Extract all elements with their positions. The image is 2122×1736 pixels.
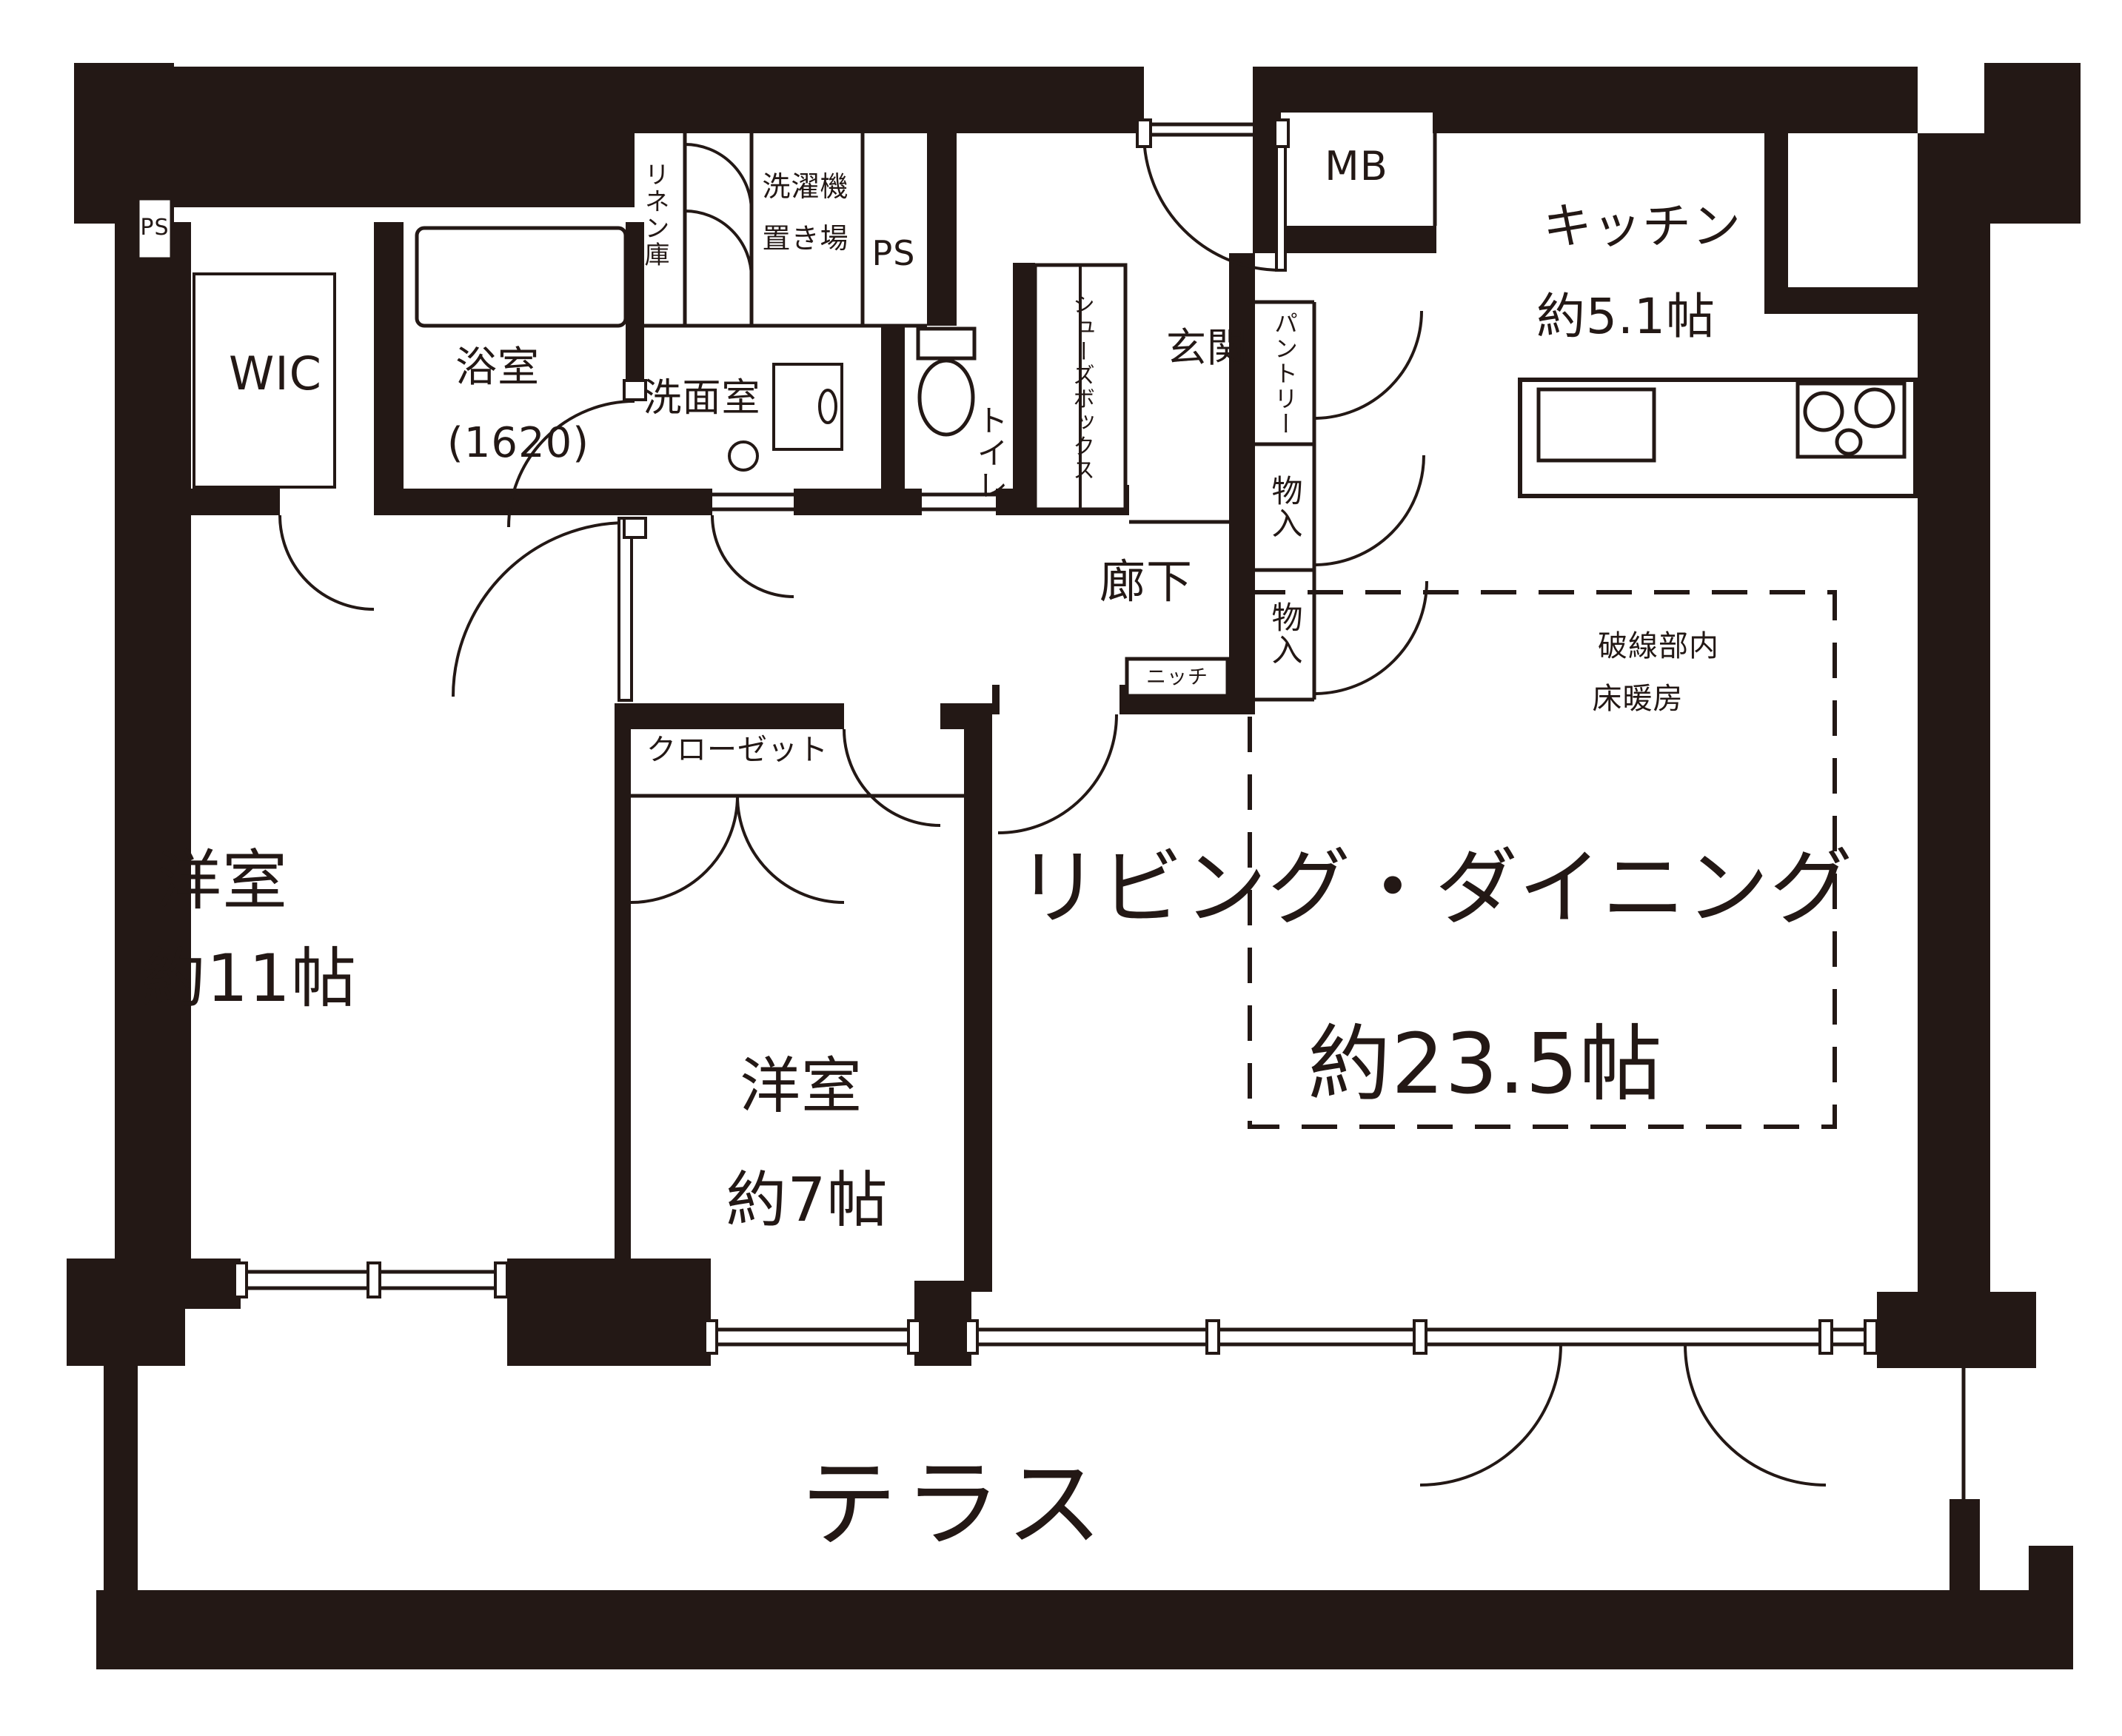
wall-pillar-bottom-left-b (67, 1259, 185, 1366)
terrace-door-arc-2 (1685, 1344, 1826, 1485)
jamb (368, 1263, 380, 1297)
label-laundry-1: 洗濯機 (762, 172, 849, 201)
wall-right (1918, 133, 1990, 1292)
label-storage-upper: 物入 (1269, 475, 1300, 540)
kitchen-sink (1539, 389, 1654, 460)
wall-ps-east (927, 132, 957, 326)
jamb (1820, 1321, 1832, 1353)
wall-terrace-partition-stub (1949, 1499, 1980, 1590)
entrance-door-leaf (1276, 133, 1285, 270)
wall-washroom-south (794, 489, 922, 515)
linen-bifold-arc-1 (685, 144, 752, 211)
washroom-door-arc (712, 515, 794, 597)
wall-toilet-shoebox (1013, 263, 1035, 485)
wall-closet-north-west (631, 703, 844, 729)
label-genkan: 玄関 (1166, 328, 1248, 368)
jamb (1207, 1321, 1219, 1353)
wic-door-arc (280, 515, 374, 609)
jamb (1137, 120, 1151, 147)
bed11-door-arc (453, 523, 626, 697)
label-living-name: リビング・ダイニング (1017, 847, 1853, 930)
wall-corridor-south-jamb (992, 685, 1000, 714)
wall-washroom-toilet (881, 326, 905, 490)
label-bed11-area: 約11帖 (141, 946, 357, 1011)
wall-pillar-top-right (1984, 63, 2081, 224)
label-laundry-2: 置き場 (762, 224, 849, 252)
stove-burner-3 (1837, 430, 1861, 454)
wall-bath-south (404, 489, 712, 515)
linen-bifold-arc-2 (685, 211, 752, 278)
wall-wic-south (191, 489, 280, 515)
wall-terrace-right-stub (2029, 1546, 2073, 1590)
label-bath-name: 浴室 (455, 347, 540, 389)
jamb (624, 518, 646, 537)
wall-pillar-bottom-mid (507, 1259, 711, 1366)
label-ps-top: PS (872, 236, 916, 270)
label-mb: MB (1325, 147, 1388, 187)
storage-upper-door-arc (1314, 455, 1424, 565)
pantry-door-arc (1314, 311, 1422, 418)
label-kitchen-area: 約5.1帖 (1536, 292, 1716, 341)
jamb (1414, 1321, 1426, 1353)
jamb (495, 1263, 507, 1297)
label-bed7-area: 約7帖 (726, 1170, 888, 1231)
wall-kitchen-step (1788, 287, 1918, 314)
label-bed11-name: 洋室 (156, 848, 288, 914)
washroom-drain (729, 442, 757, 470)
label-corridor: 廊下 (1100, 559, 1193, 605)
wall-pillar-bottom-right (1877, 1292, 2036, 1368)
label-washroom: 洗面室 (643, 379, 760, 418)
storage-lower-door-arc (1314, 581, 1427, 694)
bathtub (417, 228, 626, 326)
wall-top-inner-band (96, 133, 635, 207)
wall-top-kitchen (1440, 67, 1918, 133)
label-terrace: テラス (800, 1456, 1109, 1552)
jamb (705, 1321, 717, 1353)
label-living-area: 約23.5帖 (1308, 1023, 1662, 1106)
label-linen: リネン庫 (642, 161, 667, 268)
jamb (908, 1321, 920, 1353)
wall-terrace-left (104, 1366, 138, 1590)
label-pantry: パントリー (1273, 311, 1296, 437)
toilet-tank (918, 329, 974, 358)
bed7-door-arc (844, 729, 940, 825)
label-kitchen-name: キッチン (1543, 202, 1741, 251)
label-closet: クローゼット (646, 735, 829, 765)
wall-corridor-east (1229, 253, 1255, 714)
label-shoebox: シューズボックス (1070, 292, 1092, 482)
wall-mb-joint (1433, 67, 1440, 133)
label-heating-2: 床暖房 (1593, 684, 1684, 714)
stove-burner-1 (1805, 393, 1842, 430)
wall-kitchen-step-leg (1764, 133, 1788, 314)
wall-living-west (964, 703, 992, 1292)
label-toilet: トイレ (974, 404, 1005, 502)
wall-bath-west (374, 222, 404, 515)
label-storage-lower: 物入 (1269, 601, 1300, 666)
bed11-door-leaf (619, 518, 632, 700)
wall-top-mb (1281, 67, 1440, 113)
terrace-door-arc-1 (1420, 1344, 1561, 1485)
jamb (1865, 1321, 1877, 1353)
jamb (1275, 120, 1288, 147)
label-bed7-name: 洋室 (740, 1056, 863, 1117)
floor-plan: PS WIC 浴室 (1620) リネン庫 洗濯機 置き場 PS 洗面室 トイレ… (0, 0, 2122, 1736)
wall-top (96, 67, 1144, 133)
label-heating-1: 破線部内 (1598, 631, 1719, 661)
jamb (965, 1321, 977, 1353)
label-ps-left: PS (140, 217, 169, 239)
closet7-bifold-arc-1 (631, 796, 737, 902)
label-wic: WIC (229, 351, 322, 397)
vanity-basin (820, 390, 836, 423)
wall-pillar-bottom-living (914, 1281, 971, 1366)
living-door-arc (998, 714, 1117, 833)
toilet-bowl (920, 361, 973, 435)
label-bath-size: (1620) (447, 423, 589, 464)
stove-burner-2 (1856, 389, 1893, 426)
wall-terrace-bottom (96, 1590, 2073, 1669)
label-niche: ニッチ (1146, 668, 1208, 688)
closet7-bifold-arc-2 (737, 796, 844, 902)
wall-left (115, 222, 191, 1259)
wall-bedroom-divider (615, 703, 631, 1259)
jamb (235, 1263, 247, 1297)
